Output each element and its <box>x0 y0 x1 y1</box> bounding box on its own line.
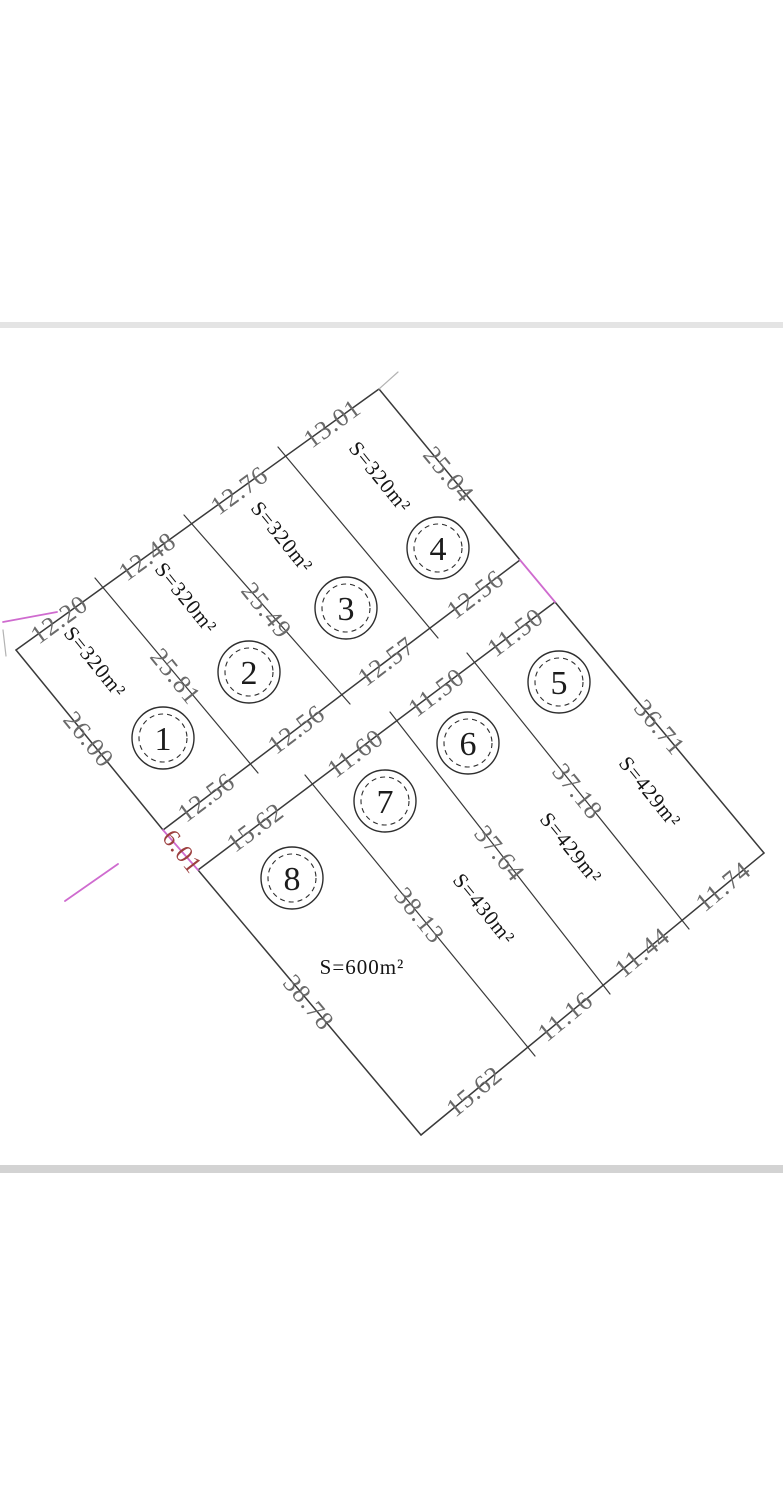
page-divider-top <box>0 322 783 328</box>
plot5-number: 5 <box>551 665 568 702</box>
road-end-segments <box>163 560 555 870</box>
dim-road-n-plot1: 12.56 <box>172 767 240 828</box>
road-edges <box>163 560 555 870</box>
plot8-number: 8 <box>284 861 301 898</box>
dim-road-n-plot2: 12.56 <box>262 699 330 760</box>
plot8-area-label: S=600m² <box>320 955 405 979</box>
plot-area-labels: S=320m² S=320m² S=320m² S=320m² S=429m² … <box>59 437 686 979</box>
plot8-number-badge: 8 <box>261 847 323 909</box>
dim-road-s-plot8: 15.62 <box>221 797 289 858</box>
plot3-number: 3 <box>338 591 355 628</box>
plot5-area-label: S=429m² <box>614 752 686 833</box>
plot2-number-badge: 2 <box>218 641 280 703</box>
plot7-number: 7 <box>377 784 394 821</box>
construction-tick-west-corner <box>3 630 6 656</box>
plot7-number-badge: 7 <box>354 770 416 832</box>
dim-road-s-plot7: 11.60 <box>322 723 389 784</box>
plot3-area-label: S=320m² <box>246 497 318 578</box>
plot-number-badges: 1 2 3 4 5 6 7 8 <box>132 517 590 909</box>
plot1-area-label: S=320m² <box>59 622 131 703</box>
plot4-number: 4 <box>430 531 447 568</box>
plot1-number-badge: 1 <box>132 707 194 769</box>
dim-w-plot1: 26.00 <box>57 706 120 774</box>
dim-se-plot5: 11.74 <box>690 855 757 917</box>
dim-boundary-7-8: 38.13 <box>388 882 450 950</box>
dim-se-plot8: 15.62 <box>441 1060 508 1123</box>
dim-road-n-plot3: 12.57 <box>352 631 420 692</box>
dim-ne-plot4: 25.04 <box>417 441 480 508</box>
plot5-number-badge: 5 <box>528 651 590 713</box>
dim-se-plot7: 11.16 <box>532 985 599 1047</box>
plot1-number: 1 <box>155 721 172 758</box>
plot3-number-badge: 3 <box>315 577 377 639</box>
plot4-area-label: S=320m² <box>344 437 416 518</box>
road-east-end-magenta <box>520 560 555 602</box>
plot4-number-badge: 4 <box>407 517 469 579</box>
dim-road-s-plot5: 11.50 <box>482 602 549 663</box>
dim-ne-plot5: 36.71 <box>628 694 691 761</box>
plot6-area-label: S=429m² <box>535 808 607 889</box>
dim-road-n-plot4: 12.56 <box>441 564 509 625</box>
page-divider-bottom <box>0 1165 783 1173</box>
dim-boundary-6-7: 37.64 <box>468 820 530 888</box>
plot2-area-label: S=320m² <box>150 558 222 639</box>
dim-se-plot6: 11.44 <box>609 921 676 983</box>
plot6-number-badge: 6 <box>437 712 499 774</box>
plot6-number: 6 <box>460 726 477 763</box>
cadastral-plan-page: 13.01 12.76 12.48 12.20 25.04 36.71 11.7… <box>0 0 783 1500</box>
plot2-number: 2 <box>241 655 258 692</box>
construction-line-north-corner <box>379 372 398 389</box>
cadastral-plan-drawing: 13.01 12.76 12.48 12.20 25.04 36.71 11.7… <box>0 0 783 1500</box>
construction-line-magenta-lower-left <box>65 864 118 901</box>
